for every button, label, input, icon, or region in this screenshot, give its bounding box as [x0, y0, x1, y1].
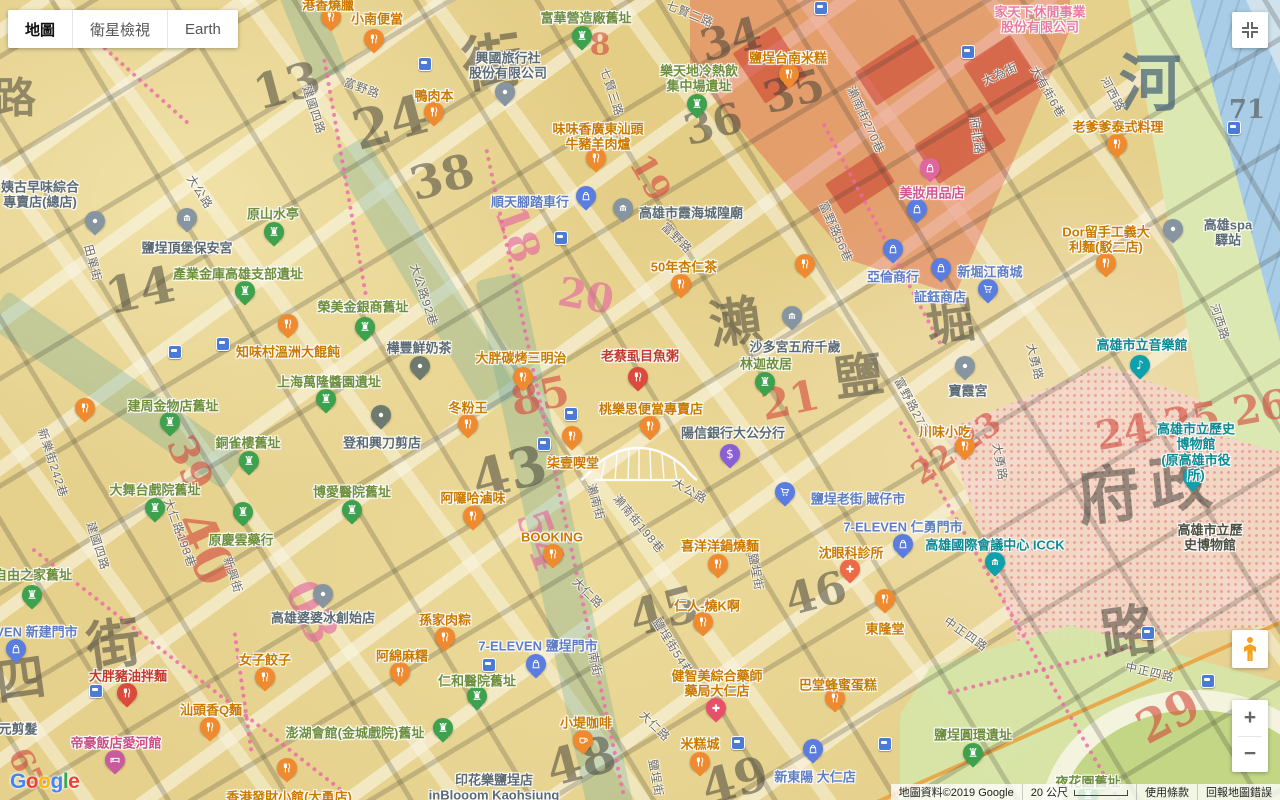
- shopping-bag-icon: [935, 262, 947, 274]
- historic-overlay-text: 路: [0, 65, 36, 126]
- poi-pin[interactable]: [706, 698, 726, 718]
- zoom-control: + −: [1232, 700, 1268, 772]
- poi-label[interactable]: 原慶雲藥行: [208, 532, 273, 547]
- castle-rook-icon: ♜: [27, 589, 38, 601]
- poi-label[interactable]: 林迦故居: [740, 356, 792, 371]
- fork-knife-icon: [439, 631, 451, 643]
- bus-stop-icon[interactable]: [89, 684, 103, 698]
- poi-pin[interactable]: [576, 186, 596, 206]
- poi-label[interactable]: 登和興刀剪店: [343, 435, 421, 450]
- poi-label[interactable]: 姨古早味綜合 專賣店(總店): [1, 180, 79, 211]
- poi-pin[interactable]: [278, 314, 298, 334]
- poi-label[interactable]: 建周金物店舊址: [127, 398, 218, 413]
- poi-pin[interactable]: [840, 559, 860, 579]
- google-logo-letter: o: [26, 770, 38, 793]
- poi-label[interactable]: 高雄市霞海城隍廟: [639, 205, 743, 220]
- google-logo-letter: e: [68, 770, 79, 793]
- poi-pin[interactable]: [893, 534, 913, 554]
- temple-icon: [786, 310, 798, 322]
- shopping-cart-icon: [982, 283, 994, 295]
- bus-stop-icon[interactable]: [537, 437, 551, 451]
- shopping-cart-icon: [779, 486, 791, 498]
- poi-label[interactable]: 鹽埕老街 賊仔市: [811, 491, 906, 506]
- poi-pin[interactable]: ♜: [433, 718, 453, 738]
- bus-stop-icon[interactable]: [216, 337, 230, 351]
- poi-label[interactable]: 富華營造廠舊址: [540, 10, 631, 25]
- poi-pin[interactable]: ♜: [342, 500, 362, 520]
- fork-knife-icon: [712, 558, 724, 570]
- pegman-button[interactable]: [1232, 630, 1268, 668]
- poi-pin[interactable]: [410, 356, 430, 376]
- shopping-bag-icon: [807, 743, 819, 755]
- poi-pin[interactable]: [513, 367, 533, 387]
- medical-cross-icon: [710, 702, 722, 714]
- scale-bar: [1074, 790, 1128, 796]
- castle-rook-icon: ♜: [150, 502, 161, 514]
- dot-icon: [317, 588, 329, 600]
- poi-pin[interactable]: ♜: [145, 498, 165, 518]
- pegman-icon: [1239, 636, 1261, 662]
- google-logo-letter: o: [38, 770, 50, 793]
- poi-label[interactable]: 仁人-燒K啊: [674, 598, 740, 613]
- poi-pin[interactable]: [875, 589, 895, 609]
- poi-pin[interactable]: [105, 750, 125, 770]
- poi-pin[interactable]: [458, 414, 478, 434]
- poi-label[interactable]: 沈眼科診所: [818, 545, 883, 560]
- fork-knife-icon: [959, 440, 971, 452]
- poi-pin[interactable]: [1096, 253, 1116, 273]
- fork-knife-icon: [462, 418, 474, 430]
- poi-pin[interactable]: [75, 398, 95, 418]
- historic-overlay-text: 8: [590, 28, 611, 63]
- google-logo[interactable]: Google: [10, 770, 79, 794]
- fork-knife-icon: [694, 756, 706, 768]
- poi-label[interactable]: 7-ELEVEN 新建門市: [0, 624, 78, 639]
- poi-pin[interactable]: [775, 482, 795, 502]
- fork-knife-icon: [79, 402, 91, 414]
- dot-icon: [375, 409, 387, 421]
- poi-pin[interactable]: [978, 279, 998, 299]
- poi-label[interactable]: 上海萬隆醬園遺址: [277, 374, 381, 389]
- poi-label[interactable]: 東隆堂: [865, 621, 904, 636]
- poi-label[interactable]: 小南便當: [351, 11, 403, 26]
- bus-stop-icon[interactable]: [814, 1, 828, 15]
- poi-pin[interactable]: ♜: [22, 585, 42, 605]
- castle-rook-icon: ♜: [238, 506, 249, 518]
- poi-label[interactable]: 大胖豬油拌麵: [89, 668, 167, 683]
- coffee-cup-icon: [577, 734, 589, 746]
- poi-label[interactable]: 銅雀樓舊址: [215, 435, 280, 450]
- shopping-bag-icon: [924, 162, 936, 174]
- google-logo-letter: g: [51, 770, 63, 793]
- bus-stop-icon[interactable]: [418, 57, 432, 71]
- poi-label[interactable]: 帝豪飯店愛河館: [70, 735, 161, 750]
- fork-knife-icon: [282, 318, 294, 330]
- poi-pin[interactable]: [177, 208, 197, 228]
- poi-pin[interactable]: ♜: [233, 502, 253, 522]
- poi-label[interactable]: 亞倫商行: [867, 269, 919, 284]
- music-note-icon: ♪: [1136, 359, 1144, 371]
- poi-label[interactable]: 仁和醫院舊址: [438, 673, 516, 688]
- poi-pin[interactable]: [255, 667, 275, 687]
- poi-label[interactable]: 印花樂鹽埕店 inBlooom Kaohsiung: [429, 773, 560, 800]
- map-type-button-earth[interactable]: Earth: [168, 10, 238, 48]
- poi-label[interactable]: 老爹爹泰式料理: [1072, 119, 1163, 134]
- castle-rook-icon: ♜: [165, 416, 176, 428]
- bus-stop-icon[interactable]: [961, 45, 975, 59]
- exit-fullscreen-button[interactable]: [1232, 12, 1268, 48]
- fork-knife-icon: [368, 33, 380, 45]
- poi-label[interactable]: 知味村溫洲大餛飩: [236, 344, 340, 359]
- google-logo-letter: G: [10, 770, 26, 793]
- bus-stop-icon[interactable]: [564, 407, 578, 421]
- map-type-control: 地圖 衛星檢視 Earth: [8, 10, 238, 48]
- castle-rook-icon: ♜: [347, 504, 358, 516]
- fork-knife-icon: [1100, 257, 1112, 269]
- fork-knife-icon: [428, 106, 440, 118]
- castle-rook-icon: ♜: [269, 226, 280, 238]
- poi-pin[interactable]: [543, 544, 563, 564]
- building-icon: [989, 556, 1001, 568]
- poi-pin[interactable]: [920, 158, 940, 178]
- temple-icon: [617, 202, 629, 214]
- poi-label[interactable]: Dor留手工義大 利麵(駁二店): [1062, 225, 1149, 256]
- poi-pin[interactable]: [85, 211, 105, 231]
- terms-link[interactable]: 使用條款: [1145, 787, 1189, 799]
- poi-pin[interactable]: [671, 274, 691, 294]
- dot-icon: [414, 360, 426, 372]
- shopping-bag-icon: [530, 658, 542, 670]
- fork-knife-icon: [590, 152, 602, 164]
- poi-label[interactable]: 阿綿麻糬: [376, 648, 428, 663]
- poi-label[interactable]: 7-ELEVEN 鹽埕門市: [478, 638, 597, 653]
- poi-label[interactable]: 高雄市立音樂館: [1096, 337, 1187, 352]
- poi-pin[interactable]: [779, 64, 799, 84]
- poi-label[interactable]: 川味小吃: [919, 424, 971, 439]
- poi-pin[interactable]: ♜: [687, 94, 707, 114]
- fork-knife-icon: [566, 430, 578, 442]
- fork-knife-icon: [325, 11, 337, 23]
- poi-label[interactable]: 寶霞宮: [948, 383, 987, 398]
- poi-pin[interactable]: ♜: [355, 317, 375, 337]
- castle-rook-icon: ♜: [240, 285, 251, 297]
- fork-knife-icon: [204, 721, 216, 733]
- poi-label[interactable]: 米糕城: [680, 736, 719, 751]
- poi-pin[interactable]: [277, 758, 297, 778]
- poi-label[interactable]: 阿囉哈滷味: [440, 490, 505, 505]
- poi-pin[interactable]: [435, 627, 455, 647]
- poi-label[interactable]: 興國旅行社 股份有限公司: [469, 51, 547, 82]
- poi-pin[interactable]: [562, 426, 582, 446]
- fork-knife-icon: [675, 278, 687, 290]
- poi-label[interactable]: 高雄市立歷史博物館 (原高雄市役所): [1154, 421, 1238, 482]
- poi-label[interactable]: 鴨肉本: [414, 88, 453, 103]
- poi-pin[interactable]: ♜: [467, 686, 487, 706]
- poi-label[interactable]: 女子餃子: [239, 652, 291, 667]
- poi-pin[interactable]: ♜: [239, 451, 259, 471]
- poi-pin[interactable]: [955, 356, 975, 376]
- shopping-bag-icon: [911, 203, 923, 215]
- map-type-button-map[interactable]: 地圖: [8, 10, 72, 48]
- poi-label[interactable]: 喜洋洋鍋燒麵: [681, 538, 759, 553]
- zoom-out-button[interactable]: −: [1232, 737, 1268, 773]
- poi-label[interactable]: 元剪髮: [0, 721, 38, 736]
- poi-label[interactable]: 樺豐鮮奶茶: [386, 340, 451, 355]
- poi-label[interactable]: 巴堂蜂蜜蛋糕: [799, 677, 877, 692]
- poi-pin[interactable]: [200, 717, 220, 737]
- poi-label[interactable]: 榮美金銀商舊址: [317, 299, 408, 314]
- poi-label[interactable]: 小堤咖啡: [560, 715, 612, 730]
- castle-rook-icon: ♜: [321, 393, 332, 405]
- zoom-in-button[interactable]: +: [1232, 700, 1268, 736]
- map-data-attribution: 地圖資料©2019 Google: [891, 784, 1022, 800]
- bus-stop-icon[interactable]: [168, 345, 182, 359]
- castle-rook-icon: ♜: [438, 722, 449, 734]
- fork-knife-icon: [783, 68, 795, 80]
- fork-knife-icon: [121, 687, 133, 699]
- poi-pin[interactable]: ♜: [572, 26, 592, 46]
- map-canvas[interactable]: 24133834353614434546484971街瀨鹽堀府政路四街路河819…: [0, 0, 1280, 800]
- castle-rook-icon: ♜: [968, 747, 979, 759]
- fork-knife-icon: [1111, 138, 1123, 150]
- poi-label[interactable]: 高雄婆婆冰創始店: [271, 610, 375, 625]
- poi-label[interactable]: 產業金庫高雄支部遺址: [173, 266, 303, 281]
- poi-pin[interactable]: [371, 405, 391, 425]
- poi-label[interactable]: 老蔡虱目魚粥: [601, 348, 679, 363]
- poi-label[interactable]: 原山水亭: [247, 206, 299, 221]
- poi-pin[interactable]: [803, 739, 823, 759]
- poi-label[interactable]: 汕頭香Q麵: [180, 702, 242, 717]
- poi-pin[interactable]: ♜: [963, 743, 983, 763]
- report-error-link[interactable]: 回報地圖錯誤: [1206, 787, 1272, 799]
- poi-label[interactable]: 孫家肉粽: [419, 612, 471, 627]
- poi-label[interactable]: 健智美綜合藥師 藥局大仁店: [671, 669, 762, 700]
- dot-icon: [499, 86, 511, 98]
- poi-label[interactable]: 桃樂思便當專賣店: [599, 401, 703, 416]
- shopping-bag-icon: [580, 190, 592, 202]
- bus-stop-icon[interactable]: [1201, 674, 1215, 688]
- shopping-bag-icon: [897, 538, 909, 550]
- fork-knife-icon: [394, 666, 406, 678]
- poi-label[interactable]: 柒壹喫堂: [547, 455, 599, 470]
- fork-knife-icon: [259, 671, 271, 683]
- poi-pin[interactable]: $: [720, 444, 740, 464]
- castle-rook-icon: ♜: [760, 376, 771, 388]
- scale-control: 20 公尺: [1022, 784, 1136, 800]
- castle-rook-icon: ♜: [244, 455, 255, 467]
- poi-pin[interactable]: [931, 258, 951, 278]
- fork-knife-icon: [517, 371, 529, 383]
- fork-knife-icon: [879, 593, 891, 605]
- dot-icon: [89, 215, 101, 227]
- poi-pin[interactable]: [526, 654, 546, 674]
- poi-pin[interactable]: [640, 416, 660, 436]
- fork-knife-icon: [799, 258, 811, 270]
- fork-knife-icon: [281, 762, 293, 774]
- poi-label[interactable]: 7-ELEVEN 仁勇門市: [843, 519, 962, 534]
- castle-rook-icon: ♜: [577, 30, 588, 42]
- bus-stop-icon[interactable]: [554, 231, 568, 245]
- poi-label[interactable]: 陽信銀行大公分行: [681, 425, 785, 440]
- map-type-button-satellite[interactable]: 衛星檢視: [73, 10, 167, 48]
- shopping-bag-icon: [887, 243, 899, 255]
- fork-knife-icon: [467, 510, 479, 522]
- shopping-bag-icon: [10, 643, 22, 655]
- poi-label[interactable]: 樂天地冷熱飲 集中場遺址: [660, 64, 738, 95]
- poi-pin[interactable]: [117, 683, 137, 703]
- poi-pin[interactable]: [907, 199, 927, 219]
- poi-label[interactable]: 香港發財小館(大勇店): [226, 789, 352, 800]
- medical-cross-icon: [844, 563, 856, 575]
- poi-pin[interactable]: ♜: [264, 222, 284, 242]
- poi-pin[interactable]: [313, 584, 333, 604]
- poi-pin[interactable]: [693, 612, 713, 632]
- poi-pin[interactable]: [364, 29, 384, 49]
- poi-pin[interactable]: [1163, 219, 1183, 239]
- bed-icon: [109, 754, 121, 766]
- poi-pin[interactable]: ♜: [160, 412, 180, 432]
- castle-rook-icon: ♜: [360, 321, 371, 333]
- poi-label[interactable]: 自由之家舊址: [0, 567, 72, 582]
- poi-label[interactable]: 新東陽 大仁店: [774, 769, 856, 784]
- poi-pin[interactable]: ♜: [316, 389, 336, 409]
- bus-stop-icon[interactable]: [1227, 121, 1241, 135]
- poi-label[interactable]: 港香燒臘: [302, 0, 354, 13]
- poi-label[interactable]: 高雄國際會議中心 ICCK: [925, 537, 1064, 552]
- poi-label[interactable]: 鹽埕圓環遺址: [934, 727, 1012, 742]
- poi-pin[interactable]: [463, 506, 483, 526]
- attribution-bar: 地圖資料©2019 Google 20 公尺 使用條款 回報地圖錯誤: [891, 784, 1280, 800]
- bus-stop-icon[interactable]: [878, 737, 892, 751]
- poi-label[interactable]: 博愛醫院舊址: [313, 484, 391, 499]
- poi-pin[interactable]: [495, 82, 515, 102]
- poi-pin[interactable]: [795, 254, 815, 274]
- fork-knife-icon: [829, 692, 841, 704]
- fork-knife-icon: [632, 371, 644, 383]
- poi-pin[interactable]: [613, 198, 633, 218]
- poi-label[interactable]: 大胖碳烤三明治: [475, 350, 566, 365]
- dollar-icon: $: [726, 448, 734, 460]
- poi-label[interactable]: 高雄市立歷史博物館: [1175, 523, 1245, 554]
- dot-icon: [1167, 223, 1179, 235]
- poi-label[interactable]: 鹽埕台南米糕: [749, 50, 827, 65]
- poi-label[interactable]: 澎湖會館(金城戲院)舊址: [286, 725, 425, 740]
- poi-pin[interactable]: [628, 367, 648, 387]
- bus-stop-icon[interactable]: [482, 658, 496, 672]
- poi-label[interactable]: 新堀江商城: [957, 264, 1022, 279]
- poi-label[interactable]: 順天腳踏車行: [491, 194, 569, 209]
- poi-pin[interactable]: [573, 730, 593, 750]
- poi-label[interactable]: 沙多宮五府千歲: [749, 339, 840, 354]
- poi-label[interactable]: 証鈺商店: [914, 289, 966, 304]
- poi-pin[interactable]: [690, 752, 710, 772]
- temple-icon: [181, 212, 193, 224]
- fork-knife-icon: [644, 420, 656, 432]
- poi-pin[interactable]: ♜: [755, 372, 775, 392]
- bus-stop-icon[interactable]: [731, 736, 745, 750]
- poi-pin[interactable]: ♜: [235, 281, 255, 301]
- poi-label[interactable]: 鹽埕頂堡保安宮: [141, 240, 232, 255]
- poi-pin[interactable]: ♪: [1130, 355, 1150, 375]
- poi-pin[interactable]: [708, 554, 728, 574]
- dot-icon: [959, 360, 971, 372]
- poi-pin[interactable]: [6, 639, 26, 659]
- poi-label[interactable]: BOOKING: [521, 529, 583, 544]
- castle-rook-icon: ♜: [472, 690, 483, 702]
- poi-label[interactable]: 美妝用品店: [899, 185, 964, 200]
- poi-pin[interactable]: [390, 662, 410, 682]
- fork-knife-icon: [547, 548, 559, 560]
- castle-rook-icon: ♜: [692, 98, 703, 110]
- bus-stop-icon[interactable]: [1141, 626, 1155, 640]
- poi-pin[interactable]: [1107, 134, 1127, 154]
- poi-label[interactable]: 50年杏仁茶: [651, 259, 717, 274]
- fork-knife-icon: [697, 616, 709, 628]
- exit-fullscreen-icon: [1241, 21, 1259, 39]
- poi-pin[interactable]: [424, 102, 444, 122]
- historic-overlay-text: 河: [1119, 33, 1181, 123]
- poi-pin[interactable]: [782, 306, 802, 326]
- poi-pin[interactable]: [883, 239, 903, 259]
- historic-overlay-text: 20: [555, 268, 618, 324]
- poi-label[interactable]: 大舞台戲院舊址: [109, 482, 200, 497]
- poi-label[interactable]: 高雄spa驛站: [1202, 218, 1254, 249]
- poi-label[interactable]: 家天下休閒事業 股份有限公司: [994, 5, 1085, 36]
- poi-label[interactable]: 味味香廣東汕頭 牛豬羊肉爐: [552, 122, 643, 153]
- poi-label[interactable]: 冬粉王: [448, 400, 487, 415]
- poi-pin[interactable]: [985, 552, 1005, 572]
